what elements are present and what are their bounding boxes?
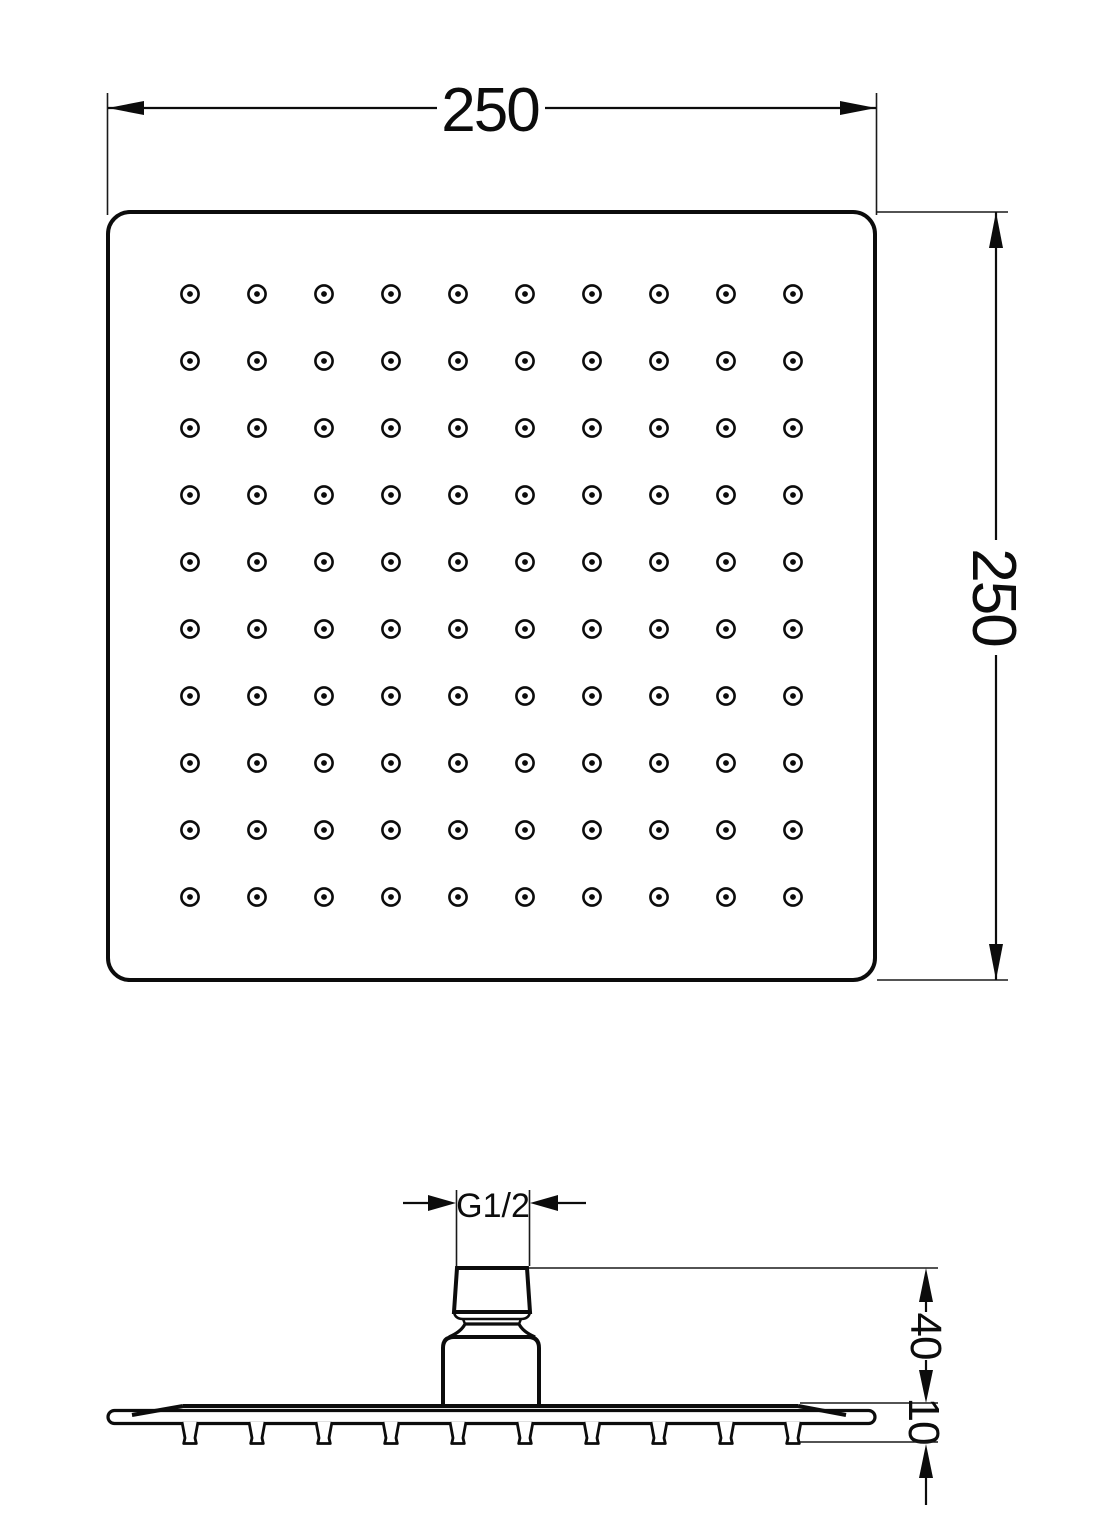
nozzle-center	[522, 894, 528, 900]
nozzle-center	[254, 894, 260, 900]
nozzle-center	[254, 559, 260, 565]
nozzle-center	[656, 693, 662, 699]
nozzle-center	[254, 358, 260, 364]
nozzle-center	[187, 358, 193, 364]
arrowhead-left-icon	[108, 101, 144, 115]
nozzle-center	[723, 559, 729, 565]
arrowhead-right-icon	[428, 1195, 456, 1211]
arrowhead-up-icon	[989, 212, 1003, 248]
nozzle-center	[187, 760, 193, 766]
nozzle-center	[589, 358, 595, 364]
nozzle-center	[388, 358, 394, 364]
side-view: G1/2 40	[108, 1187, 950, 1505]
nozzle-center	[321, 291, 327, 297]
nozzle-center	[723, 358, 729, 364]
nozzle-center	[455, 358, 461, 364]
side-nozzle	[718, 1422, 734, 1444]
nozzle-center	[522, 492, 528, 498]
nozzle-center	[187, 425, 193, 431]
dimension-connector-height: 40	[800, 1268, 950, 1403]
nozzle-center	[589, 291, 595, 297]
nozzle-center	[589, 626, 595, 632]
side-nozzle	[651, 1422, 667, 1444]
nozzle-center	[656, 827, 662, 833]
nozzle-center	[656, 425, 662, 431]
nozzle-center	[187, 693, 193, 699]
nozzle-center	[187, 827, 193, 833]
nozzle-center	[589, 425, 595, 431]
nozzle-center	[388, 894, 394, 900]
shower-plate-outline	[108, 212, 875, 980]
nozzle-center	[455, 425, 461, 431]
nozzle-center	[254, 760, 260, 766]
nozzle-center	[589, 492, 595, 498]
nozzle-center	[455, 827, 461, 833]
side-nozzle	[785, 1422, 801, 1444]
nozzle-center	[321, 358, 327, 364]
thread-pipe	[454, 1268, 530, 1312]
nozzle-center	[254, 425, 260, 431]
nozzle-center	[522, 626, 528, 632]
dimension-plate-thickness-label: 10	[899, 1398, 948, 1445]
nozzle-center	[723, 894, 729, 900]
nozzle-center	[187, 626, 193, 632]
nozzle-center	[790, 358, 796, 364]
dimension-width: 250	[108, 76, 877, 215]
nozzle-center	[455, 894, 461, 900]
plate-bar	[108, 1411, 875, 1424]
nozzle-center	[388, 425, 394, 431]
top-view: 250 250	[108, 76, 1029, 980]
arrowhead-up-icon	[919, 1268, 933, 1302]
nozzle-center	[388, 760, 394, 766]
nozzle-center	[321, 492, 327, 498]
nozzle-center	[589, 559, 595, 565]
nozzle-center	[321, 425, 327, 431]
nozzle-center	[589, 760, 595, 766]
nozzle-center	[388, 559, 394, 565]
plate-side	[108, 1406, 875, 1444]
nozzle-center	[790, 827, 796, 833]
nozzle-center	[388, 827, 394, 833]
nozzle-center	[321, 827, 327, 833]
nozzle-center	[455, 559, 461, 565]
connector	[443, 1268, 539, 1406]
nozzle-center	[723, 425, 729, 431]
side-nozzle	[383, 1422, 399, 1444]
arrowhead-right-icon	[840, 101, 876, 115]
dimension-connector-height-label: 40	[901, 1313, 950, 1360]
side-nozzle	[584, 1422, 600, 1444]
nozzle-center	[723, 626, 729, 632]
nozzle-center	[187, 894, 193, 900]
nozzle-center	[522, 291, 528, 297]
nozzle-center	[522, 559, 528, 565]
dimension-height-label: 250	[959, 548, 1028, 646]
nozzle-center	[321, 559, 327, 565]
nozzle-center	[187, 492, 193, 498]
nozzle-center	[790, 760, 796, 766]
side-nozzle	[517, 1422, 533, 1444]
nozzle-center	[321, 626, 327, 632]
nozzle-center	[790, 894, 796, 900]
nozzle-center	[522, 827, 528, 833]
nozzle-center	[455, 693, 461, 699]
nozzle-center	[455, 626, 461, 632]
nozzle-center	[455, 760, 461, 766]
nozzle-center	[455, 291, 461, 297]
nozzle-center	[790, 492, 796, 498]
nozzle-center	[723, 492, 729, 498]
nozzle-center	[589, 827, 595, 833]
nozzle-center	[790, 693, 796, 699]
nozzle-center	[388, 693, 394, 699]
nozzle-center	[589, 894, 595, 900]
nozzle-center	[388, 492, 394, 498]
nozzle-center	[723, 827, 729, 833]
arrowhead-left-icon	[530, 1195, 558, 1211]
dimension-width-label: 250	[441, 76, 539, 145]
nozzle-center	[589, 693, 595, 699]
nozzle-center	[656, 492, 662, 498]
side-nozzle	[182, 1422, 198, 1444]
nozzle-center	[790, 626, 796, 632]
nozzle-center	[522, 693, 528, 699]
side-nozzle	[249, 1422, 265, 1444]
shower-head-technical-drawing: 250 250 G1/2	[0, 0, 1096, 1519]
nozzle-center	[455, 492, 461, 498]
nozzle-center	[656, 894, 662, 900]
nozzle-center	[254, 492, 260, 498]
nozzle-center	[187, 291, 193, 297]
nozzle-center	[656, 291, 662, 297]
nozzle-center	[656, 358, 662, 364]
dimension-thread: G1/2	[403, 1187, 586, 1266]
nozzle-center	[723, 760, 729, 766]
arrowhead-down-icon	[989, 944, 1003, 980]
nozzle-center	[254, 626, 260, 632]
dimension-height: 250	[877, 212, 1028, 980]
nozzle-center	[254, 291, 260, 297]
nozzle-center	[723, 693, 729, 699]
nozzle-center	[656, 626, 662, 632]
nozzle-center	[522, 760, 528, 766]
nozzle-center	[187, 559, 193, 565]
dimension-thread-label: G1/2	[456, 1187, 530, 1225]
nozzle-center	[723, 291, 729, 297]
side-nozzle	[316, 1422, 332, 1444]
nozzle-center	[522, 425, 528, 431]
nozzle-center	[656, 760, 662, 766]
nozzle-center	[321, 760, 327, 766]
nozzle-center	[254, 693, 260, 699]
technical-drawing-page: 250 250 G1/2	[0, 0, 1096, 1519]
nozzle-center	[656, 559, 662, 565]
arrowhead-up-icon	[919, 1444, 933, 1478]
nozzle-row	[182, 1422, 801, 1444]
connector-base	[443, 1337, 539, 1406]
nozzle-center	[790, 425, 796, 431]
nozzle-center	[790, 291, 796, 297]
nozzle-center	[254, 827, 260, 833]
side-nozzle	[450, 1422, 466, 1444]
nozzle-center	[388, 291, 394, 297]
nozzle-center	[790, 559, 796, 565]
nozzle-center	[522, 358, 528, 364]
nozzle-center	[388, 626, 394, 632]
nozzle-center	[321, 894, 327, 900]
nozzle-center	[321, 693, 327, 699]
